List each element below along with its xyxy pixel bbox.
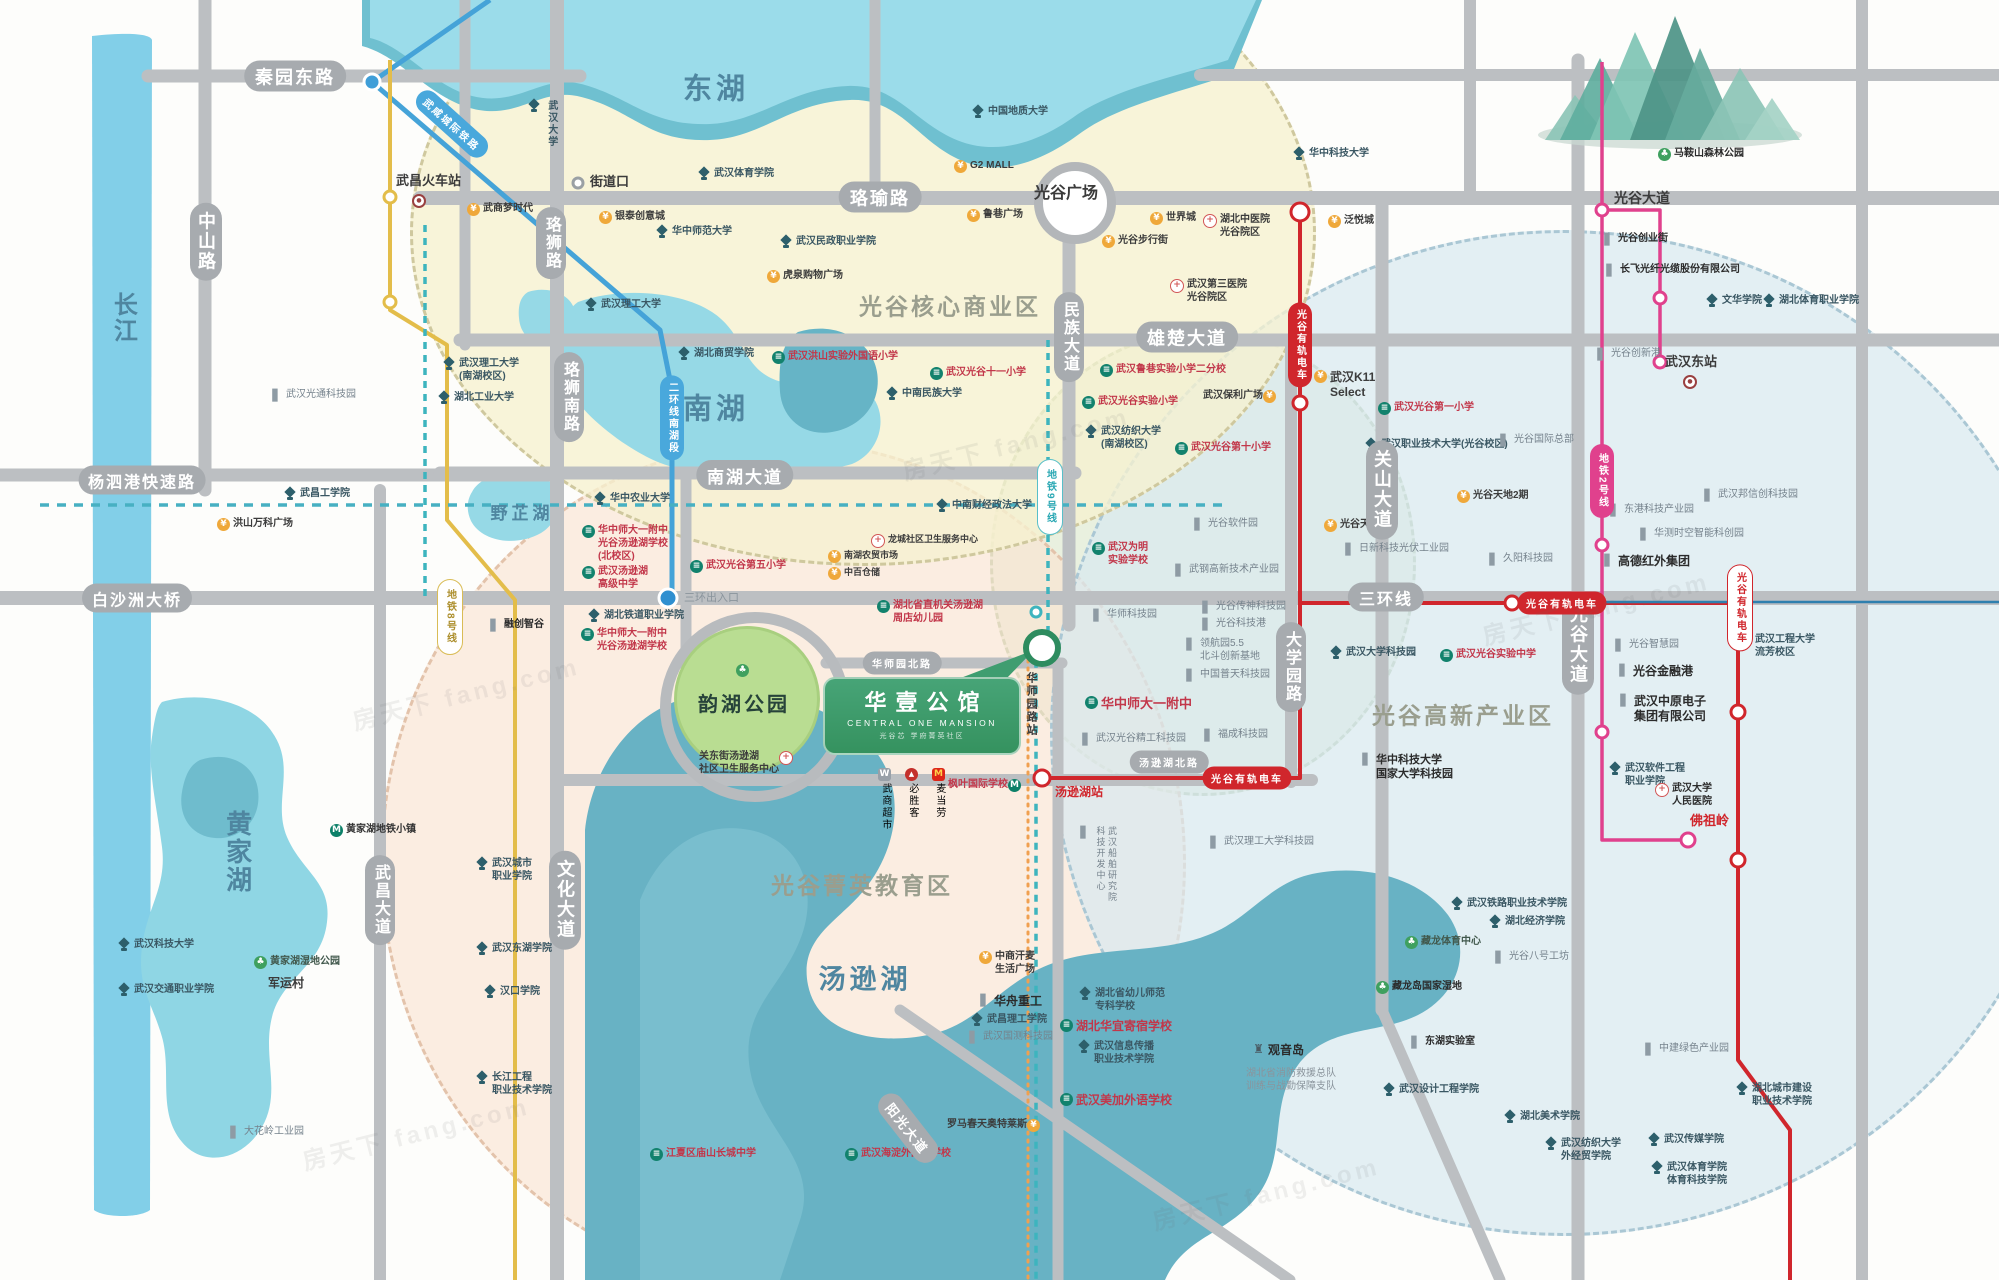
- label-text: 武汉理工大学科技园: [1224, 836, 1314, 849]
- mall-label: 罗马春天奥特莱斯¥: [947, 1119, 1043, 1132]
- mall-label: ¥鲁巷广场: [967, 209, 1023, 222]
- uni-icon: [972, 106, 985, 118]
- uni-icon: [484, 986, 497, 998]
- label-text: 日新科技光伏工业园: [1359, 543, 1449, 556]
- bld-label: ▋武汉中原电子 集团有限公司: [1618, 694, 1706, 725]
- tree-label: ♣: [736, 664, 752, 677]
- sch-label: ≡武汉光谷第十小学: [1175, 442, 1271, 455]
- label-text: 湖北省消防救援总队 训练与战勤保障支队: [1246, 1068, 1336, 1094]
- bld-label: ▋武汉光通科技园: [270, 389, 356, 402]
- label-text: 南湖: [683, 391, 749, 428]
- uni-label: 华中农业大学: [594, 493, 670, 506]
- bld-label: ▋武汉理工大学科技园: [1208, 836, 1314, 849]
- bld-icon: ▋: [1498, 434, 1511, 447]
- uni-label: 武汉铁路职业技术学院: [1451, 898, 1567, 911]
- mall-icon: ¥: [1324, 519, 1337, 532]
- label-text: 关东街汤逊湖 社区卫生服务中心: [699, 751, 779, 777]
- hosp-icon: +: [871, 534, 885, 548]
- uni-label: 中南财经政法大学: [936, 500, 1032, 513]
- road-22: [1382, 1010, 1500, 1280]
- rail-icon: ●: [1683, 375, 1697, 389]
- road-pill: 地铁9号线: [1037, 459, 1063, 535]
- label-text: 湖北铁道职业学院: [604, 610, 684, 623]
- zonelbl-label: 光谷核心商业区: [859, 292, 1041, 321]
- label-text: 武汉城市 职业学院: [492, 858, 532, 884]
- label-text: 湖北经济学院: [1505, 916, 1565, 929]
- sch-label: 枫叶国际学校M: [948, 779, 1024, 792]
- bld-label: ▋华中科技大学 国家大学科技园: [1360, 753, 1453, 781]
- label-text: 武汉光谷十一小学: [946, 367, 1026, 380]
- bld-icon: ▋: [1343, 543, 1356, 556]
- uni-label: 长江工程 职业技术学院: [476, 1072, 552, 1098]
- mall-icon: ¥: [1328, 215, 1341, 228]
- bld-label: ▋华师科技园: [1091, 609, 1157, 622]
- lake-label: 黄家湖: [220, 810, 253, 894]
- station-dot-8: [1654, 292, 1666, 304]
- bld-icon: ▋: [1702, 489, 1715, 502]
- bld-icon: ▋: [1184, 669, 1197, 682]
- lake-label: 南湖: [683, 391, 749, 428]
- uni-label: 武汉科技大学: [118, 939, 194, 952]
- ph-icon: ▲: [905, 768, 918, 781]
- uni-icon: [1706, 295, 1719, 307]
- bld-label: ▋华舟重工: [978, 994, 1042, 1009]
- sch-icon: ≡: [1092, 542, 1105, 555]
- sch-label: ≡武汉为明 实验学校: [1092, 542, 1148, 568]
- uni-label: 武汉大学科技园: [1330, 647, 1416, 660]
- label-text: 湖北商贸学院: [694, 348, 754, 361]
- sch-label: ≡武汉光谷十一小学: [930, 367, 1026, 380]
- label-text: 湖北华宜寄宿学校: [1076, 1019, 1172, 1034]
- label-text: 汤逊湖站: [1055, 785, 1103, 800]
- label-text: 南湖农贸市场: [844, 550, 898, 562]
- bld-icon: ▋: [1604, 264, 1617, 277]
- label-text: 武汉职业技术大学(光谷校区): [1381, 439, 1508, 452]
- txt-label: 街道口: [590, 174, 629, 191]
- label-text: 光谷广场: [1034, 184, 1098, 204]
- bld-label: ▋武汉国测科技园: [967, 1031, 1053, 1044]
- mall-icon: ¥: [1314, 370, 1327, 383]
- uni-label: 湖北美术学院: [1504, 1111, 1580, 1124]
- hosp-icon: +: [1170, 279, 1184, 293]
- mall-icon: ¥: [1102, 235, 1115, 248]
- label-text: 光谷八号工坊: [1509, 951, 1569, 964]
- label-text: 武汉体育学院: [714, 168, 774, 181]
- label-text: 武汉东站: [1665, 354, 1717, 371]
- uni-icon: [698, 168, 711, 180]
- metro-icon: M: [1008, 779, 1021, 792]
- uni-icon: [656, 226, 669, 238]
- label-text: 武汉大学: [544, 100, 557, 148]
- label-text: 武商梦时代: [483, 203, 533, 216]
- uni-label: 武昌工学院: [284, 488, 350, 501]
- label-text: 武汉体育学院 体育科技学院: [1667, 1162, 1727, 1188]
- label-text: 华中农业大学: [610, 493, 670, 506]
- sch-label: ≡武汉洪山实验外国语小学: [772, 351, 898, 364]
- label-text: 藏龙岛国家湿地: [1392, 981, 1462, 994]
- txt-label: 光谷广场: [1034, 184, 1098, 204]
- label-text: 武汉理工大学 (南湖校区): [459, 358, 519, 384]
- label-text: 洪山万科广场: [233, 518, 293, 531]
- label-text: 华师园路站: [1024, 672, 1038, 737]
- ws-icon: W: [878, 768, 891, 781]
- uni-label: 武汉体育学院: [698, 168, 774, 181]
- mall-icon: ¥: [217, 518, 230, 531]
- uni-icon: [118, 939, 131, 951]
- sch-icon: ≡: [1085, 696, 1098, 709]
- bld-icon: ▋: [1638, 528, 1651, 541]
- sch-label: ≡江夏区庙山长城中学: [650, 1148, 756, 1161]
- label-text: 武汉光谷第十小学: [1191, 442, 1271, 455]
- lake-label: 长江: [107, 292, 138, 344]
- label-text: 中百仓储: [844, 567, 880, 579]
- uni-icon: [1330, 647, 1343, 659]
- ph-label: ▲必胜客: [905, 768, 918, 819]
- sch-label: ≡武汉光谷第五小学: [690, 560, 786, 573]
- uni-label: 华中师范大学: [656, 226, 732, 239]
- mall-icon: ¥: [767, 270, 780, 283]
- bld-icon: ▋: [1202, 729, 1215, 742]
- label-text: 中商汗麦 生活广场: [995, 951, 1035, 977]
- sch-icon: ≡: [1175, 442, 1188, 455]
- sch-icon: ≡: [582, 566, 595, 579]
- label-text: 武钢高新技术产业园: [1189, 564, 1279, 577]
- road-pill: 杨泗港快速路: [79, 466, 206, 495]
- bld-label: ▋大花岭工业园: [228, 1126, 304, 1139]
- lake-label: 汤逊湖: [819, 963, 912, 998]
- map-canvas: 华壹公馆 CENTRAL ONE MANSION 光谷芯 学府菁英社区 秦园东路…: [0, 0, 1999, 1280]
- label-text: 华师科技园: [1107, 609, 1157, 622]
- label-text: 武汉交通职业学院: [134, 984, 214, 997]
- label-text: 湖北体育职业学院: [1779, 295, 1859, 308]
- label-text: 野芷湖: [491, 503, 554, 525]
- label-text: 黄家湖湿地公园: [270, 956, 340, 969]
- txt-label: 华师园路站: [1024, 672, 1038, 737]
- sch-label: ≡武汉美加外语学校: [1060, 1093, 1172, 1108]
- uni-label: 武汉传媒学院: [1648, 1134, 1724, 1147]
- label-text: 武汉中原电子 集团有限公司: [1634, 694, 1706, 725]
- station-dot-3: [573, 178, 583, 188]
- label-text: 湖北美术学院: [1520, 1111, 1580, 1124]
- uni-label: 中国地质大学: [972, 106, 1048, 119]
- tree-icon: ♣: [1376, 981, 1389, 994]
- label-text: 鲁巷广场: [983, 209, 1023, 222]
- road-pill: 珞狮路: [536, 207, 566, 279]
- label-text: G2 MALL: [970, 160, 1014, 173]
- txt-label: 武汉东站: [1665, 354, 1717, 371]
- sch-icon: ≡: [1378, 402, 1391, 415]
- uni-icon: [971, 1014, 984, 1026]
- uni-label: 武汉设计工程学院: [1383, 1084, 1479, 1097]
- pagoda-icon: ♜: [1252, 1043, 1265, 1056]
- label-text: 武汉光谷第一小学: [1394, 402, 1474, 415]
- bld-icon: ▋: [1080, 733, 1093, 746]
- label-text: 军运村: [268, 976, 304, 991]
- label-text: 武汉为明 实验学校: [1108, 542, 1148, 568]
- label-text: 武汉美加外语学校: [1076, 1093, 1172, 1108]
- label-text: 光谷天地2期: [1473, 490, 1529, 503]
- station-dot-5: [1596, 204, 1608, 216]
- uni-label: 湖北体育职业学院: [1763, 295, 1859, 308]
- road-pill: 二环线南湖段: [660, 375, 684, 460]
- hosp-icon: +: [779, 751, 793, 765]
- uni-label: 武汉民政职业学院: [780, 236, 876, 249]
- uni-label: 湖北铁道职业学院: [588, 610, 684, 623]
- bld-label: ▋久阳科技园: [1487, 553, 1553, 566]
- hosp-label: 关东街汤逊湖 社区卫生服务中心+: [699, 751, 796, 777]
- bld-label: ▋高德红外集团: [1602, 554, 1690, 569]
- bld-label: ▋光谷软件园: [1192, 518, 1258, 531]
- uni-label: 湖北工业大学: [438, 392, 514, 405]
- label-text: 泛悦城: [1344, 215, 1374, 228]
- bld-icon: ▋: [1360, 753, 1373, 766]
- uni-label: 武汉体育学院 体育科技学院: [1651, 1162, 1727, 1188]
- bld-icon: ▋: [1192, 518, 1205, 531]
- mall-icon: ¥: [954, 160, 967, 173]
- bld-icon: ▋: [1602, 233, 1615, 246]
- label-text: 武汉纺织大学 外经贸学院: [1561, 1138, 1621, 1164]
- label-text: 武汉大学 人民医院: [1672, 783, 1712, 809]
- bld-icon: ▋: [1091, 609, 1104, 622]
- label-text: 华中师范大学: [672, 226, 732, 239]
- road-pill: 珞狮南路: [554, 352, 584, 442]
- station-dot-12: [1293, 396, 1307, 410]
- label-text: 江夏区庙山长城中学: [666, 1148, 756, 1161]
- label-text: 三环出入口: [684, 591, 739, 605]
- station-dot-15: [1731, 705, 1745, 719]
- bld-icon: ▋: [1493, 951, 1506, 964]
- label-text: 融创智谷: [504, 619, 544, 632]
- road-pill: 地铁2号线: [1590, 444, 1614, 518]
- label-text: 武商超市: [878, 783, 891, 831]
- sch-label: ≡武汉汤逊湖 高级中学: [582, 566, 648, 592]
- uni-icon: [1651, 1162, 1664, 1174]
- rail-label: ●: [1683, 375, 1700, 389]
- tree-icon: ♣: [736, 664, 749, 677]
- mall-label: ¥虎泉购物广场: [767, 270, 843, 283]
- sch-icon: ≡: [1060, 1019, 1073, 1032]
- bld-icon: ▋: [1643, 1043, 1656, 1056]
- label-text: 麦当劳: [932, 783, 945, 819]
- tree-icon: ♣: [1405, 936, 1418, 949]
- hosp-label: +龙城社区卫生服务中心: [871, 534, 978, 548]
- label-text: 东湖实验室: [1425, 1036, 1475, 1049]
- label-text: 武汉第三医院 光谷院区: [1187, 279, 1247, 305]
- bld-label: ▋武汉邦信创科技园: [1702, 489, 1798, 502]
- label-text: 佛祖岭: [1690, 813, 1729, 830]
- label-text: 文华学院: [1722, 295, 1762, 308]
- label-text: 藏龙体育中心: [1421, 936, 1481, 949]
- label-text: 虎泉购物广场: [783, 270, 843, 283]
- label-text: 长江: [107, 292, 138, 344]
- tree-label: ♣藏龙岛国家湿地: [1376, 981, 1462, 994]
- uni-label: 湖北商贸学院: [678, 348, 754, 361]
- label-text: 东湖: [683, 71, 749, 108]
- label-text: 中国地质大学: [988, 106, 1048, 119]
- hosp-label: +湖北中医院 光谷院区: [1203, 214, 1270, 240]
- hosp-label: +武汉第三医院 光谷院区: [1170, 279, 1247, 305]
- label-text: 武汉信息传播 职业技术学院: [1094, 1041, 1154, 1067]
- sch-icon: ≡: [845, 1148, 858, 1161]
- bld-label: ▋光谷传神科技园: [1200, 601, 1286, 614]
- road-pill: 汤逊湖北路: [1130, 751, 1209, 774]
- bld-icon: ▋: [488, 619, 501, 632]
- zonelbl-label: 光谷高新产业区: [1372, 701, 1554, 730]
- uni-icon: [476, 1072, 489, 1084]
- label-text: 武汉保利广场: [1203, 390, 1263, 403]
- sch-label: ≡华中师大一附中 光谷汤逊湖学校: [581, 628, 667, 654]
- label-text: 马鞍山森林公园: [1674, 148, 1744, 161]
- mtr-label: M黄家湖地铁小镇: [330, 824, 416, 837]
- label-text: 武昌理工学院: [987, 1014, 1047, 1027]
- uni-label: 中南民族大学: [886, 388, 962, 401]
- pagoda-label: ♜观音岛: [1252, 1043, 1304, 1058]
- uni-icon: [1648, 1134, 1661, 1146]
- sch-icon: ≡: [1060, 1093, 1073, 1106]
- property-title: 华壹公馆: [825, 691, 1019, 715]
- sch-label: ≡湖北华宜寄宿学校: [1060, 1019, 1172, 1034]
- label-text: 武汉汤逊湖 高级中学: [598, 566, 648, 592]
- bld-icon: ▋: [1618, 694, 1631, 707]
- uni-label: 文华学院: [1706, 295, 1762, 308]
- station-dot-0: [384, 191, 396, 203]
- label-text: 观音岛: [1268, 1043, 1304, 1058]
- label-text: 武汉K11 Select: [1330, 370, 1375, 401]
- label-text: 光谷智慧园: [1629, 639, 1679, 652]
- station-dot-10: [1681, 833, 1695, 847]
- bld-icon: ▋: [270, 389, 283, 402]
- uni-icon: [1504, 1111, 1517, 1123]
- label-text: 黄家湖地铁小镇: [346, 824, 416, 837]
- sch-icon: ≡: [877, 600, 890, 613]
- property-marker-central-one-mansion: 华壹公馆 CENTRAL ONE MANSION 光谷芯 学府菁英社区: [823, 677, 1021, 755]
- label-text: 光谷大道: [1614, 190, 1670, 208]
- lake-changjiang: [92, 34, 152, 1216]
- txt-label: 光谷大道: [1614, 190, 1670, 208]
- station-dot-18: [1031, 607, 1041, 617]
- tree-icon: ♣: [254, 956, 267, 969]
- bld-icon: ▋: [1208, 836, 1221, 849]
- sch-icon: ≡: [1100, 364, 1113, 377]
- bld-label: ▋武钢高新技术产业园: [1173, 564, 1279, 577]
- uni-label: 湖北经济学院: [1489, 916, 1565, 929]
- label-text: 武汉国测科技园: [983, 1031, 1053, 1044]
- label-text: 领航园5.5 北斗创新基地: [1200, 638, 1260, 664]
- label-text: 大花岭工业园: [244, 1126, 304, 1139]
- txt-label: 武昌火车站: [396, 173, 461, 190]
- station-dot-11: [1291, 203, 1309, 221]
- gray-label: 三环出入口: [684, 591, 739, 605]
- label-text: 华中师大一附中: [1101, 696, 1192, 713]
- label-text: 武汉鲁巷实验小学二分校: [1116, 364, 1226, 377]
- bld-label: ▋光谷创新港: [1595, 348, 1661, 361]
- label-text: 光谷软件园: [1208, 518, 1258, 531]
- mall-label: ¥武商梦时代: [467, 203, 533, 216]
- mall-label: ¥洪山万科广场: [217, 518, 293, 531]
- road-pill: 民族大道: [1054, 292, 1084, 382]
- mall-icon: ¥: [1263, 390, 1276, 403]
- label-text: 武汉光谷精工科技园: [1096, 733, 1186, 746]
- bld-label: ▋华测时空智能科创园: [1638, 528, 1744, 541]
- station-dot-1: [384, 296, 396, 308]
- uni-icon: [118, 984, 131, 996]
- uni-icon: [443, 358, 456, 370]
- uni-icon: [936, 500, 949, 512]
- bld-label: ▋福成科技园: [1202, 729, 1268, 742]
- bld-label: ▋光谷国际总部: [1498, 434, 1574, 447]
- bld-label: ▋融创智谷: [488, 619, 544, 632]
- road-pill: 关山大道: [1366, 441, 1398, 540]
- bld-icon: ▋: [1409, 1036, 1422, 1049]
- sch-label: ≡武汉光谷第一小学: [1378, 402, 1474, 415]
- bld-icon: ▋: [1487, 553, 1500, 566]
- mall-label: ¥武汉K11 Select: [1314, 370, 1375, 401]
- road-pill: 三环线: [1348, 583, 1424, 612]
- bld-label: ▋东港科技产业园: [1608, 504, 1694, 517]
- uni-icon: [1293, 148, 1306, 160]
- label-text: 湖北省幼儿师范 专科学校: [1095, 988, 1165, 1014]
- label-text: 华舟重工: [994, 994, 1042, 1009]
- sch-label: ≡湖北省直机关汤逊湖 周店幼儿园: [877, 600, 983, 626]
- uni-icon: [1609, 763, 1622, 775]
- label-text: 武汉理工大学: [601, 299, 661, 312]
- uni-label: 武汉大学: [528, 100, 557, 148]
- mall-icon: ¥: [828, 567, 841, 580]
- road-pill: 雄楚大道: [1136, 322, 1238, 353]
- station-dot-2: [364, 74, 380, 90]
- sch-label: ≡华中师大一附中: [1085, 696, 1192, 713]
- label-text: 街道口: [590, 174, 629, 191]
- label-text: 华中师大一附中 光谷汤逊湖学校: [597, 628, 667, 654]
- sch-label: ≡华中师大一附中 光谷汤逊湖学校 (北校区): [582, 525, 668, 563]
- label-text: 武汉光谷第五小学: [706, 560, 786, 573]
- station-dot-6: [1596, 539, 1608, 551]
- label-text: 光谷高新产业区: [1372, 701, 1554, 730]
- bld-icon: ▋: [1617, 664, 1630, 677]
- mall-icon: ¥: [599, 211, 612, 224]
- road-pill: 大学园路: [1276, 622, 1306, 712]
- mall-label: ¥中商汗麦 生活广场: [979, 951, 1035, 977]
- label-text: 光谷国际总部: [1514, 434, 1574, 447]
- bld-icon: ▋: [978, 994, 991, 1007]
- label-text: 福成科技园: [1218, 729, 1268, 742]
- label-text: 武汉设计工程学院: [1399, 1084, 1479, 1097]
- label-text: 华中师大一附中 光谷汤逊湖学校 (北校区): [598, 525, 668, 563]
- road-pill: 中山路: [190, 203, 222, 281]
- sch-icon: ≡: [581, 628, 594, 641]
- sch-icon: ≡: [650, 1148, 663, 1161]
- mall-label: ¥光谷步行街: [1102, 235, 1168, 248]
- mc-icon: M: [932, 768, 945, 781]
- label-text: 光谷菁英教育区: [771, 871, 953, 900]
- road-pill: 地铁8号线: [437, 579, 463, 655]
- road-pill: 文化大道: [549, 851, 581, 950]
- label-text: 光谷传神科技园: [1216, 601, 1286, 614]
- bld-icon: ▋: [1173, 564, 1186, 577]
- label-text: 武汉邦信创科技园: [1718, 489, 1798, 502]
- uni-label: 华中科技大学: [1293, 148, 1369, 161]
- mall-icon: ¥: [1457, 490, 1470, 503]
- bld-label: ▋东湖实验室: [1409, 1036, 1475, 1049]
- label-text: 韵湖公园: [698, 693, 790, 719]
- uni-icon: [476, 858, 489, 870]
- label-text: 光谷科技港: [1216, 618, 1266, 631]
- uni-icon: [678, 348, 691, 360]
- red-label: 汤逊湖站: [1055, 785, 1103, 800]
- label-text: 武汉洪山实验外国语小学: [788, 351, 898, 364]
- tree-label: ♣马鞍山森林公园: [1658, 148, 1744, 161]
- mall-label: ¥中百仓储: [828, 567, 880, 580]
